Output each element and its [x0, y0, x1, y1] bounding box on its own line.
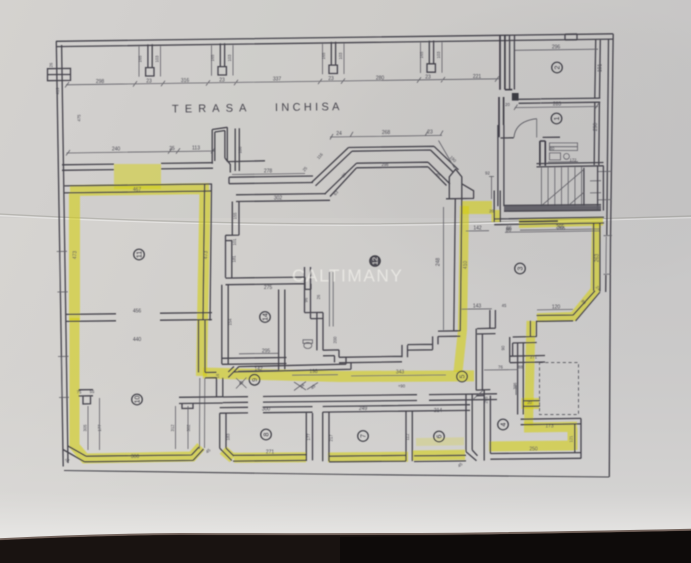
svg-text:26: 26 — [316, 294, 321, 299]
svg-text:302: 302 — [274, 196, 283, 202]
svg-text:456: 456 — [133, 309, 142, 315]
svg-text:113: 113 — [192, 145, 200, 151]
svg-text:120: 120 — [552, 304, 561, 310]
svg-text:298: 298 — [382, 162, 390, 167]
svg-text:4: 4 — [501, 422, 508, 426]
svg-text:86: 86 — [506, 228, 512, 234]
svg-text:248: 248 — [436, 258, 442, 267]
svg-text:112: 112 — [405, 433, 410, 440]
svg-text:165: 165 — [210, 54, 215, 62]
svg-text:103: 103 — [155, 55, 160, 63]
svg-text:23: 23 — [219, 77, 225, 83]
svg-text:103: 103 — [436, 51, 441, 59]
svg-text:88: 88 — [518, 365, 523, 370]
svg-text:271: 271 — [266, 450, 275, 456]
svg-text:410: 410 — [463, 261, 469, 270]
svg-text:249: 249 — [359, 406, 368, 412]
svg-text:TERASA: TERASA — [172, 102, 253, 115]
svg-text:214: 214 — [434, 408, 443, 414]
svg-text:23: 23 — [328, 76, 334, 82]
svg-text:INCHISA: INCHISA — [275, 101, 343, 114]
svg-text:475: 475 — [77, 114, 82, 122]
svg-text:75: 75 — [77, 390, 82, 395]
svg-text:386: 386 — [513, 382, 518, 390]
svg-text:23: 23 — [146, 78, 152, 84]
svg-text:473: 473 — [204, 251, 210, 260]
svg-text:23: 23 — [427, 130, 433, 136]
svg-text:45: 45 — [502, 303, 507, 308]
svg-text:181: 181 — [232, 255, 237, 263]
svg-text:200: 200 — [333, 336, 338, 344]
svg-text:76: 76 — [498, 365, 503, 370]
svg-text:26: 26 — [49, 62, 54, 67]
svg-text:20: 20 — [489, 209, 494, 214]
svg-text:155: 155 — [233, 212, 238, 220]
svg-text:290: 290 — [593, 123, 599, 132]
svg-text:165: 165 — [138, 55, 143, 63]
svg-text:142: 142 — [473, 226, 482, 232]
svg-text:240: 240 — [112, 147, 121, 153]
svg-text:419: 419 — [55, 87, 60, 95]
svg-text:177: 177 — [97, 424, 102, 432]
svg-text:473: 473 — [73, 251, 79, 260]
svg-text:25: 25 — [169, 146, 175, 152]
svg-text:96: 96 — [304, 297, 309, 302]
svg-text:10: 10 — [135, 396, 142, 404]
svg-text:142: 142 — [254, 367, 263, 373]
svg-text:6: 6 — [437, 434, 444, 438]
svg-text:250: 250 — [529, 447, 538, 453]
svg-text:3: 3 — [518, 266, 525, 270]
svg-text:103: 103 — [338, 52, 343, 60]
svg-text:268: 268 — [382, 130, 391, 136]
svg-text:23: 23 — [425, 75, 431, 81]
svg-text:121: 121 — [569, 435, 574, 443]
svg-text:198: 198 — [309, 369, 318, 375]
svg-text:CALTIMANY: CALTIMANY — [292, 266, 404, 286]
svg-text:165: 165 — [419, 51, 424, 59]
svg-text:7: 7 — [361, 434, 368, 438]
svg-text:316: 316 — [181, 78, 190, 84]
svg-text:312: 312 — [170, 424, 175, 432]
svg-text:300: 300 — [262, 407, 271, 413]
svg-text:20: 20 — [527, 400, 532, 405]
svg-text:217: 217 — [329, 434, 334, 442]
svg-text:12: 12 — [373, 257, 380, 265]
svg-text:55: 55 — [90, 389, 95, 394]
svg-text:+90: +90 — [398, 384, 406, 389]
svg-text:283: 283 — [553, 102, 562, 108]
svg-text:177: 177 — [306, 433, 311, 441]
svg-text:11: 11 — [137, 251, 144, 258]
svg-text:186: 186 — [238, 146, 243, 154]
svg-text:440: 440 — [133, 337, 142, 343]
svg-text:337: 337 — [273, 77, 282, 83]
svg-text:221: 221 — [473, 74, 482, 80]
svg-text:1: 1 — [554, 116, 561, 120]
svg-text:20: 20 — [505, 102, 510, 107]
svg-text:16: 16 — [215, 373, 220, 378]
svg-text:90: 90 — [501, 345, 506, 350]
svg-text:24: 24 — [336, 131, 342, 137]
svg-text:191: 191 — [598, 64, 604, 73]
svg-text:295: 295 — [262, 349, 271, 355]
svg-text:298: 298 — [96, 79, 105, 85]
svg-text:183: 183 — [226, 433, 231, 441]
svg-text:280: 280 — [376, 75, 385, 81]
svg-text:467: 467 — [133, 187, 142, 193]
svg-text:302: 302 — [186, 424, 191, 432]
svg-text:275: 275 — [264, 285, 273, 291]
svg-text:295: 295 — [484, 396, 489, 404]
svg-text:173: 173 — [545, 424, 554, 430]
svg-text:154: 154 — [228, 318, 233, 326]
svg-text:263: 263 — [595, 254, 601, 263]
svg-text:92: 92 — [485, 171, 490, 176]
svg-text:143: 143 — [473, 304, 482, 310]
svg-text:2: 2 — [555, 65, 562, 69]
svg-text:306: 306 — [131, 454, 140, 460]
svg-text:8: 8 — [264, 432, 271, 436]
svg-text:172: 172 — [570, 158, 578, 163]
svg-text:343: 343 — [396, 370, 405, 376]
svg-text:278: 278 — [264, 169, 273, 175]
svg-text:103: 103 — [227, 54, 232, 62]
svg-text:101: 101 — [232, 238, 237, 246]
svg-text:271: 271 — [530, 355, 538, 360]
svg-text:9: 9 — [252, 378, 259, 382]
svg-text:305: 305 — [83, 424, 88, 432]
svg-text:80: 80 — [550, 146, 555, 151]
svg-text:5: 5 — [460, 374, 467, 378]
svg-text:296: 296 — [552, 45, 561, 51]
svg-text:165: 165 — [321, 52, 326, 60]
svg-text:14: 14 — [263, 313, 270, 321]
svg-text:265: 265 — [557, 226, 566, 232]
